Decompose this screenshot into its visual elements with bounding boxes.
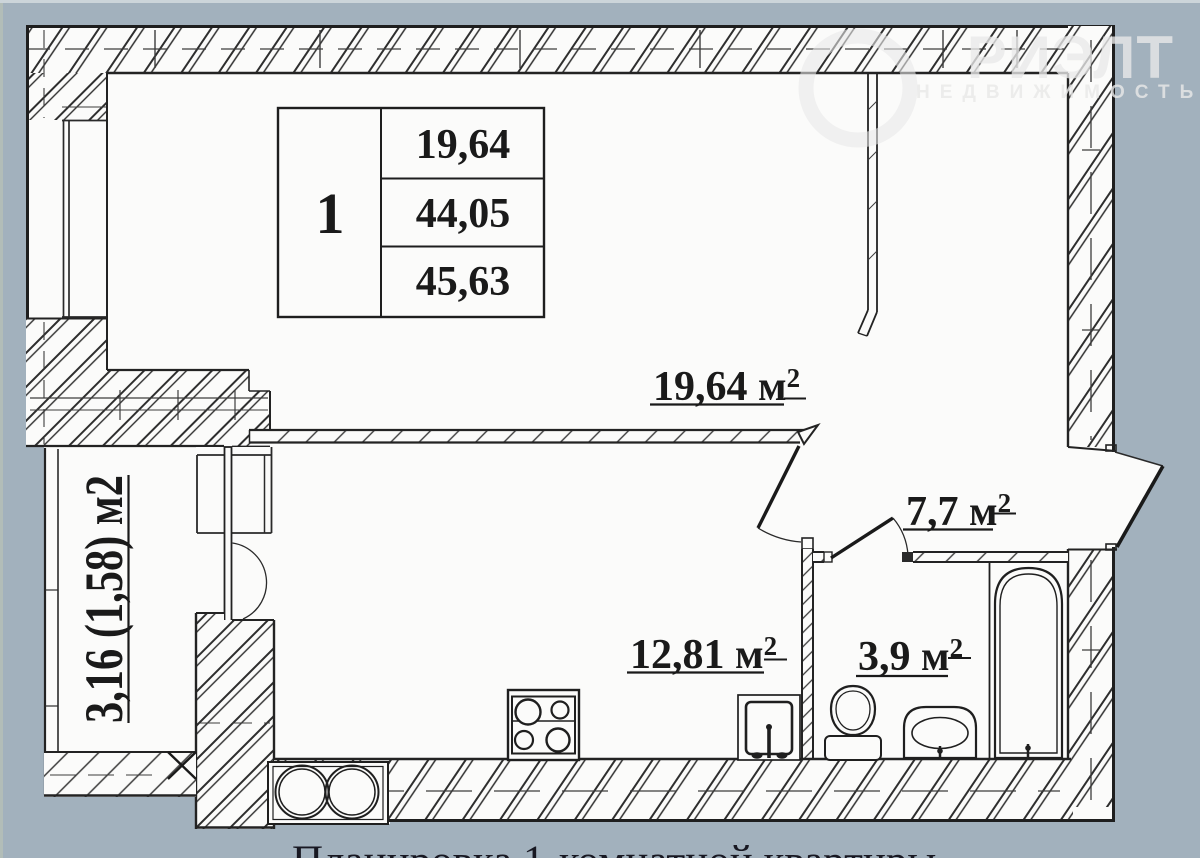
svg-text:19,64: 19,64	[416, 122, 511, 168]
svg-text:7,7 м2: 7,7 м2	[906, 488, 1011, 535]
svg-text:12,81 м2: 12,81 м2	[630, 631, 777, 678]
svg-text:3,16 (1,58) м2: 3,16 (1,58) м2	[74, 475, 134, 723]
svg-text:45,63: 45,63	[416, 259, 511, 305]
svg-text:Планировка 1-комнатной квартир: Планировка 1-комнатной квартиры	[292, 838, 936, 858]
svg-text:3,9 м2: 3,9 м2	[858, 633, 963, 680]
svg-text:19,64 м2: 19,64 м2	[653, 363, 800, 410]
svg-text:1: 1	[316, 181, 345, 246]
svg-text:НЕДВИЖИМОСТЬ: НЕДВИЖИМОСТЬ	[916, 82, 1200, 103]
svg-text:РИЭЛТ: РИЭЛТ	[967, 24, 1174, 91]
svg-text:44,05: 44,05	[416, 191, 511, 237]
